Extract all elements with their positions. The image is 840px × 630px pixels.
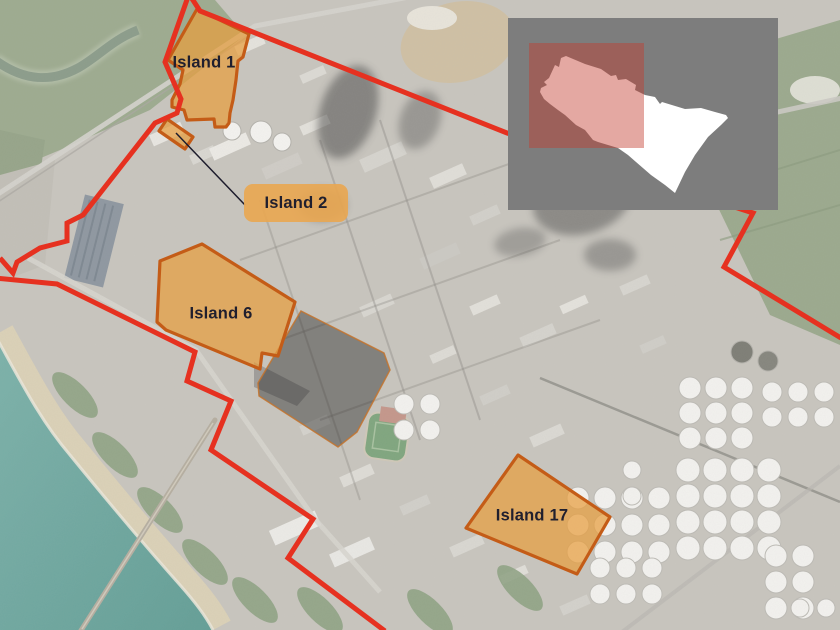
island-2-label: Island 2 (264, 194, 327, 213)
island-17-label: Island 17 (496, 507, 568, 526)
inset-view-extent (529, 43, 644, 148)
island-6-label: Island 6 (189, 305, 252, 324)
island-2-label-box: Island 2 (244, 184, 348, 222)
inset-overview-map[interactable] (508, 18, 778, 210)
map-canvas[interactable]: Island 1 Island 6 Island 17 Island 2 (0, 0, 840, 630)
island-1-label: Island 1 (172, 54, 235, 73)
island-2-leader-line (176, 133, 245, 205)
